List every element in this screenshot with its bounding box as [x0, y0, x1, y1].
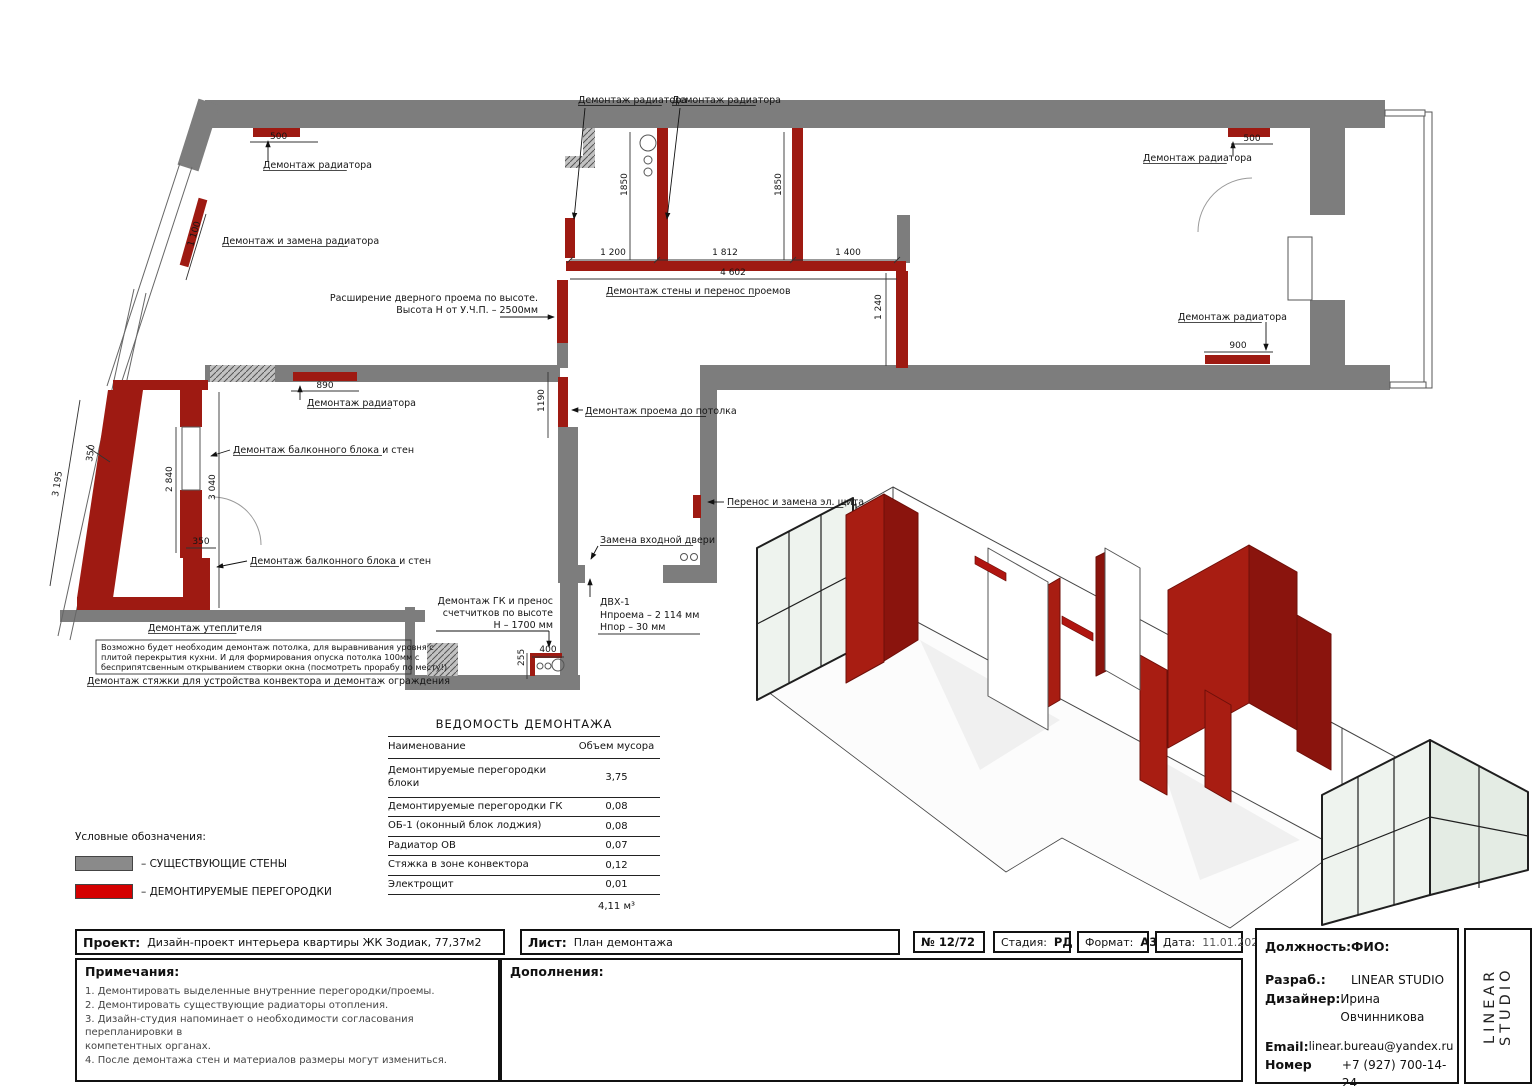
wall-kitchen-divider-hatch	[210, 365, 275, 382]
plan-label-demontazh-radiatora-right1: Демонтаж радиатора	[1143, 153, 1252, 164]
plan-label-dim-350-h: 350	[192, 537, 209, 547]
plan-label-dim-1812: 1 812	[712, 248, 738, 258]
plan-label-note-ceiling-1: Возможно будет необходим демонтаж потолк…	[101, 642, 434, 652]
row-name: Демонтируемые перегородки блоки	[388, 765, 573, 790]
plan-label-dvx-3: Нпор – 30 мм	[600, 622, 665, 633]
additions-label: Дополнения:	[510, 964, 1233, 979]
balcony-window	[182, 427, 200, 490]
phone-label-1: Номер	[1265, 1056, 1342, 1086]
plan-label-dim-1200: 1 200	[600, 248, 626, 258]
project-value: Дизайн-проект интерьера квартиры ЖК Зоди…	[147, 936, 481, 949]
note-line: 4. После демонтажа стен и материалов раз…	[85, 1054, 490, 1068]
plan-label-dvx-1: ДВХ-1	[600, 597, 630, 608]
plan-label-rasshirenie-line1: Расширение дверного проема по высоте.	[330, 293, 538, 304]
designer-label: Дизайнер:	[1265, 990, 1340, 1026]
plan-label-dim-1240: 1 240	[874, 294, 884, 320]
row-value: 0,12	[573, 860, 660, 871]
wall-entry-jog	[558, 565, 585, 583]
sheet-value: План демонтажа	[574, 936, 673, 949]
stage-label: Стадия:	[1001, 936, 1047, 949]
axo-white-wall-2	[1105, 548, 1140, 690]
date-label: Дата:	[1163, 936, 1195, 949]
wall-entry-right-of-door	[663, 565, 717, 583]
stamp-number-box: № 12/72	[913, 931, 985, 953]
plan-label-demontazh-radiatora-kitchen: Демонтаж радиатора	[307, 398, 416, 409]
meter-c2	[545, 663, 551, 669]
plan-label-gk-line2: счетчитков по высоте	[443, 608, 553, 619]
stage-value: РД	[1054, 935, 1073, 949]
wall-stub-mid	[897, 215, 910, 263]
phone-value: +7 (927) 700-14-24	[1342, 1056, 1449, 1086]
plan-label-demontazh-uteplitelya: Демонтаж утеплителя	[148, 623, 262, 634]
stamp-info-box: Должность:ФИО: Разраб.:LINEAR STUDIO Диз…	[1255, 928, 1459, 1084]
sheet-label: Лист:	[528, 935, 567, 950]
entry-c1	[681, 554, 688, 561]
plan-label-demontazh-balkon-1: Демонтаж балконного блока и стен	[233, 445, 414, 456]
col-value: Объем мусора	[573, 741, 660, 754]
table-row: Электрощит 0,01	[388, 876, 660, 896]
wall-corridor-chunk	[557, 343, 568, 368]
sheet-number: № 12/72	[921, 935, 975, 949]
plan-label-demontazh-radiatora-top1: Демонтаж радиатора	[578, 95, 687, 106]
plan-label-dim-4602: 4 602	[720, 268, 746, 278]
riser-small2	[644, 168, 652, 176]
stamp-notes-box: Примечания: 1. Демонтировать выделенные …	[75, 958, 500, 1082]
wall-loggia-c-top	[1310, 128, 1345, 215]
fio-label: ФИО:	[1351, 938, 1389, 957]
plan-label-dim-3195: 3 195	[51, 470, 65, 497]
plan-label-note-ceiling-3: бесприпятсвенным открыванием створки окн…	[101, 662, 447, 672]
plan-label-dim-255: 255	[517, 649, 527, 666]
plan-label-dim-500-right: 500	[1243, 134, 1260, 144]
riser-big	[640, 135, 656, 151]
wall-red-vertical-1240	[896, 271, 908, 368]
plan-label-dim-1100: 1 100	[186, 220, 203, 248]
plan-label-demontazh-radiatora-top2: Демонтаж радиатора	[672, 95, 781, 106]
plan-label-demontazh-zamena-radiatora: Демонтаж и замена радиатора	[222, 236, 379, 247]
stamp-logo-box: LINEAR STUDIO	[1464, 928, 1532, 1084]
radiator-right-bottom	[1205, 355, 1270, 364]
wall-slant-upper	[188, 102, 209, 168]
radiator-kitchen	[293, 372, 357, 381]
row-name: Стяжка в зоне конвектора	[388, 859, 573, 872]
legend-swatch-demolished	[75, 884, 133, 899]
row-name: Радиатор ОВ	[388, 840, 573, 853]
floor-plan-drawing: Демонтаж радиатора5001 100Демонтаж и зам…	[0, 0, 1536, 1086]
riser-small1	[644, 156, 652, 164]
legend-swatch-existing	[75, 856, 133, 871]
demolition-table-header: Наименование Объем мусора	[388, 737, 660, 759]
axo-red-left-a	[846, 494, 884, 683]
axo-red-mid-e	[1205, 690, 1231, 802]
demolition-table: ВЕДОМОСТЬ ДЕМОНТАЖА Наименование Объем м…	[388, 713, 660, 918]
legend-title: Условные обозначения:	[75, 831, 332, 843]
studio-vertical-logo: LINEAR STUDIO	[1466, 930, 1530, 1082]
row-value: 0,07	[573, 840, 660, 851]
plan-label-rasshirenie-line2: Высота Н от У.Ч.П. – 2500мм	[396, 305, 538, 316]
axo-red-mid-d	[1297, 615, 1331, 770]
email-value: linear.bureau@yandex.ru	[1309, 1038, 1454, 1057]
row-name: Демонтируемые перегородки ГК	[388, 801, 573, 814]
drawing-sheet: Демонтаж радиатора5001 100Демонтаж и зам…	[0, 0, 1536, 1086]
balcony-column-upper	[180, 390, 202, 427]
plan-label-dim-3040: 3 040	[208, 474, 218, 500]
wall-red-top1	[565, 218, 575, 258]
axo-red-mid-b	[1249, 545, 1297, 730]
entry-c2	[691, 554, 698, 561]
meter-c1	[537, 663, 543, 669]
note-line: 2. Демонтировать существующие радиаторы …	[85, 999, 490, 1013]
wall-kitchen-bottom	[60, 610, 425, 622]
wall-doorway-upper	[557, 280, 568, 343]
axo-red-mid-c	[1140, 655, 1167, 795]
plan-label-dim-1850-a: 1850	[620, 173, 630, 196]
email-label: Email:	[1265, 1038, 1309, 1057]
stamp-stage-box: Стадия: РД	[993, 931, 1071, 953]
plan-label-dvx-2: Нпроема – 2 114 мм	[600, 610, 699, 621]
door-arc-kitchen	[213, 497, 261, 545]
plan-label-gk-line3: Н – 1700 мм	[494, 620, 553, 631]
wall-red-top2	[657, 128, 668, 263]
legend-demolished-row: – ДЕМОНТИРУЕМЫЕ ПЕРЕГОРОДКИ	[75, 884, 332, 899]
table-total-row: 4,11 м³	[388, 895, 660, 918]
loggia-window	[1288, 237, 1312, 300]
axonometric-view	[757, 487, 1528, 928]
designer-value: Ирина Овчинникова	[1340, 990, 1449, 1026]
wall-proem-lower	[558, 377, 568, 427]
wall-bath-vertical	[560, 583, 578, 690]
table-row: Демонтируемые перегородки блоки 3,75	[388, 759, 660, 798]
project-label: Проект:	[83, 935, 140, 950]
plan-label-dim-1850-b: 1850	[774, 173, 784, 196]
plan-label-dim-890: 890	[316, 381, 333, 391]
plan-label-dim-500-left: 500	[270, 132, 287, 142]
role-label: Должность:	[1265, 938, 1351, 957]
dev-label: Разраб.:	[1265, 971, 1351, 990]
note-line: 3. Дизайн-студия напоминает о необходимо…	[85, 1013, 490, 1041]
axo-red-thin-1	[1048, 578, 1060, 707]
plan-label-dim-1400: 1 400	[835, 248, 861, 258]
plan-label-demontazh-balkon-2: Демонтаж балконного блока и стен	[250, 556, 431, 567]
loggia-glazing-bottom	[1390, 382, 1426, 388]
wall-top-band	[205, 100, 1385, 128]
plan-label-gk-line1: Демонтаж ГК и пренос	[438, 596, 553, 607]
legend-existing-label: – СУЩЕСТВУЮЩИЕ СТЕНЫ	[141, 858, 287, 870]
plan-label-demontazh-radiatora-right2: Демонтаж радиатора	[1178, 312, 1287, 323]
stamp-format-box: Формат: А3	[1077, 931, 1149, 953]
plan-label-dim-400: 400	[539, 645, 556, 655]
loggia-glazing-right	[1424, 112, 1432, 388]
plan-label-zamena-dveri: Замена входной двери	[600, 535, 715, 546]
dev-value: LINEAR STUDIO	[1351, 971, 1444, 990]
format-label: Формат:	[1085, 936, 1133, 949]
balcony-column-block	[183, 558, 210, 610]
plan-label-demontazh-proema: Демонтаж проема до потолка	[585, 406, 737, 417]
row-value: 0,08	[573, 821, 660, 832]
axo-red-left-b	[884, 494, 918, 661]
stamp-additions-box: Дополнения:	[500, 958, 1243, 1082]
stamp-project-box: Проект: Дизайн-проект интерьера квартиры…	[75, 929, 505, 955]
plan-label-dim-2840: 2 840	[165, 466, 175, 492]
electric-panel	[693, 495, 701, 518]
plan-label-demontazh-styazhki: Демонтаж стяжки для устройства конвектор…	[87, 676, 450, 687]
plan-label-dim-350-diag: 350	[85, 444, 98, 463]
table-row: Демонтируемые перегородки ГК 0,08	[388, 798, 660, 818]
plan-label-dim-1190: 1190	[537, 389, 547, 412]
legend-existing-row: – СУЩЕСТВУЮЩИЕ СТЕНЫ	[75, 856, 332, 871]
plan-label-dim-900-right: 900	[1229, 341, 1246, 351]
table-row: ОБ-1 (оконный блок лоджия) 0,08	[388, 817, 660, 837]
row-value: 0,08	[573, 801, 660, 812]
table-row: Радиатор ОВ 0,07	[388, 837, 660, 857]
plan-label-perenos-shchita: Перенос и замена эл. щита	[727, 497, 864, 508]
note-line: компетентных органах.	[85, 1040, 490, 1054]
table-row: Стяжка в зоне конвектора 0,12	[388, 856, 660, 876]
plan-label-demontazh-radiatora-topleft: Демонтаж радиатора	[263, 160, 372, 171]
stamp-sheet-box: Лист: План демонтажа	[520, 929, 900, 955]
row-name: ОБ-1 (оконный блок лоджия)	[388, 820, 573, 833]
door-arc-room	[1198, 178, 1252, 232]
row-value: 0,01	[573, 879, 660, 890]
plan-label-demontazh-steny-perenos: Демонтаж стены и перенос проемов	[606, 286, 791, 297]
plan-label-note-ceiling-2: плитой перекрытия кухни. И для формирова…	[101, 652, 419, 662]
wall-loggia-c-bottom	[1310, 300, 1345, 390]
table-total: 4,11 м³	[573, 901, 660, 912]
loggia-glazing-top	[1385, 110, 1425, 116]
legend-demolished-label: – ДЕМОНТИРУЕМЫЕ ПЕРЕГОРОДКИ	[141, 886, 332, 898]
note-line: 1. Демонтировать выделенные внутренние п…	[85, 985, 490, 999]
balcony-wall-top	[113, 380, 208, 390]
row-value: 3,75	[573, 772, 660, 783]
wall-red-top3	[792, 128, 803, 263]
notes-label: Примечания:	[85, 964, 490, 979]
row-name: Электрощит	[388, 879, 573, 892]
wall-entry-left	[558, 427, 578, 565]
legend: Условные обозначения: – СУЩЕСТВУЮЩИЕ СТЕ…	[75, 831, 332, 899]
wall-right-room-bottom	[700, 365, 1390, 390]
balcony-wall-diagonal	[77, 390, 143, 598]
demolition-table-title: ВЕДОМОСТЬ ДЕМОНТАЖА	[388, 713, 660, 737]
stamp-date-box: Дата: 11.01.2026	[1155, 931, 1243, 953]
col-name: Наименование	[388, 741, 573, 754]
